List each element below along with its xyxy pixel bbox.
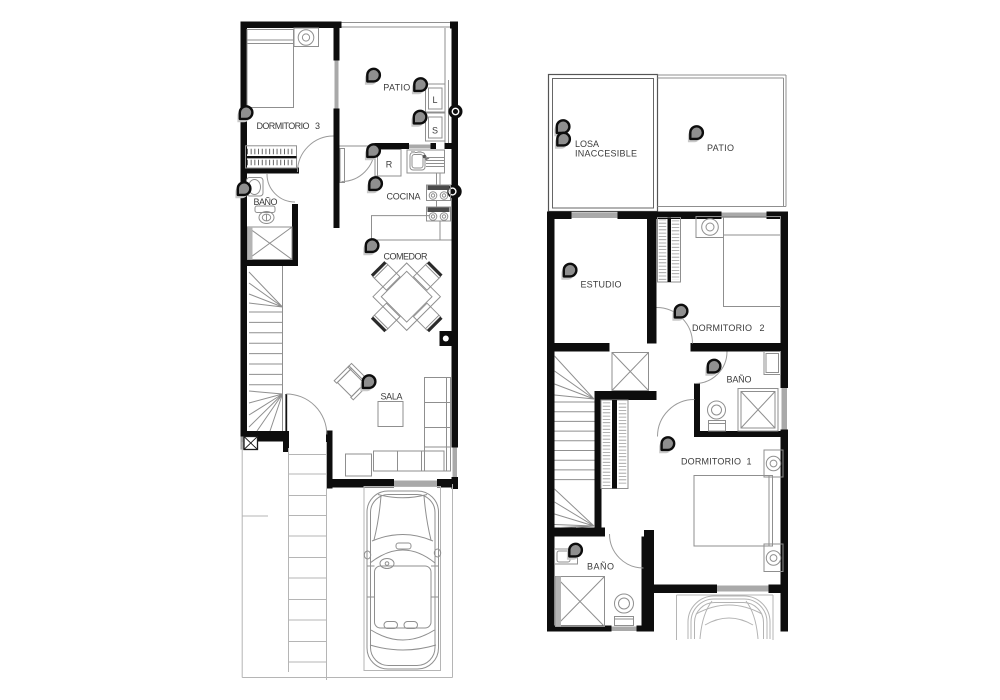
svg-text:COMEDOR: COMEDOR bbox=[384, 252, 429, 262]
svg-text:PATIO: PATIO bbox=[383, 83, 410, 93]
svg-text:2: 2 bbox=[759, 323, 764, 333]
svg-text:SALA: SALA bbox=[381, 392, 403, 402]
svg-text:S: S bbox=[432, 126, 438, 136]
svg-text:INACCESIBLE: INACCESIBLE bbox=[575, 149, 637, 159]
svg-text:L: L bbox=[432, 95, 437, 105]
svg-text:LOSA: LOSA bbox=[575, 139, 599, 149]
svg-text:DORMITORIO: DORMITORIO bbox=[681, 457, 741, 467]
svg-text:R: R bbox=[386, 160, 393, 170]
svg-text:BAÑO: BAÑO bbox=[587, 562, 614, 572]
svg-text:BAÑO: BAÑO bbox=[727, 375, 752, 385]
svg-text:COCINA: COCINA bbox=[387, 192, 421, 202]
svg-text:DORMITORIO: DORMITORIO bbox=[257, 121, 310, 131]
svg-text:ESTUDIO: ESTUDIO bbox=[581, 280, 622, 290]
svg-text:3: 3 bbox=[315, 121, 320, 131]
svg-text:BAÑO: BAÑO bbox=[254, 197, 278, 207]
svg-text:PATIO: PATIO bbox=[707, 143, 734, 153]
svg-text:1: 1 bbox=[746, 457, 751, 467]
svg-text:DORMITORIO: DORMITORIO bbox=[692, 323, 752, 333]
